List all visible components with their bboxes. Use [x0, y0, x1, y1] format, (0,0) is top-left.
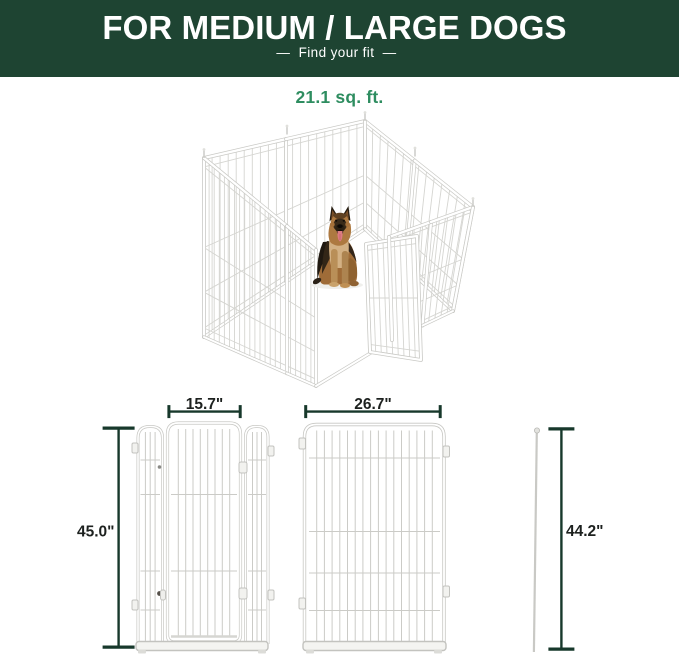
svg-text:45.0": 45.0" [77, 524, 115, 541]
svg-text:44.2": 44.2" [566, 523, 604, 540]
svg-text:26.7": 26.7" [354, 396, 392, 413]
svg-text:15.7": 15.7" [186, 396, 224, 413]
